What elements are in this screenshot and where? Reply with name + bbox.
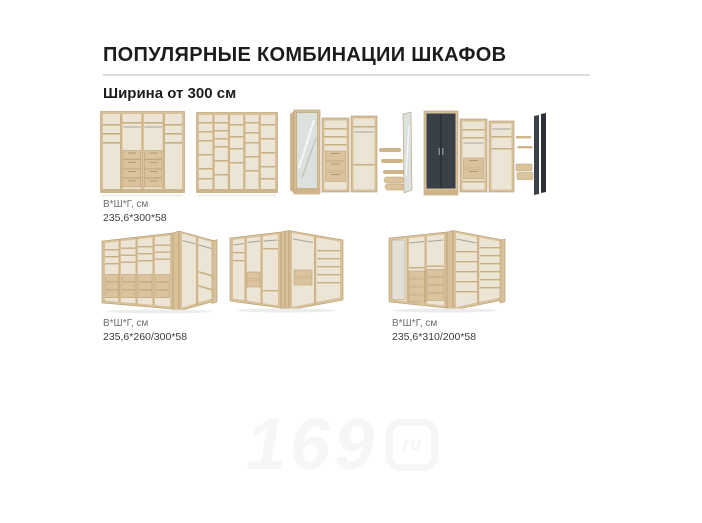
wardrobe-straight-open-shelving-icon (196, 112, 278, 198)
wardrobe-corner-shelves-right-icon (385, 227, 508, 314)
frosted-door (392, 240, 405, 300)
dims-label: В*Ш*Г, см (103, 199, 167, 211)
section-subtitle: Ширина от 300 см (103, 85, 236, 102)
dimensions-straight: В*Ш*Г, см 235,6*300*58 (103, 199, 167, 224)
title-divider (103, 74, 590, 76)
product-image-wardrobe-3[interactable] (288, 106, 414, 199)
dark-side-panel (534, 115, 539, 195)
page-title: ПОПУЛЯРНЫЕ КОМБИНАЦИИ ШКАФОВ (103, 44, 506, 67)
product-image-wardrobe-2[interactable] (196, 112, 278, 198)
product-image-corner-wardrobe-1[interactable] (99, 227, 223, 315)
dimensions-corner-right: В*Ш*Г, см 235,6*310/200*58 (392, 318, 476, 343)
wardrobe-combo-dark-doors-icon (422, 106, 546, 199)
product-image-wardrobe-4[interactable] (422, 106, 546, 199)
dims-label: В*Ш*Г, см (392, 318, 476, 330)
wardrobe-corner-v-shape-icon (227, 228, 346, 314)
watermark-169ru-logo: 169 ru (246, 402, 438, 488)
dims-label: В*Ш*Г, см (103, 318, 187, 330)
wall-shelf (516, 136, 531, 138)
dims-value: 235,6*300*58 (103, 212, 167, 224)
wardrobe-combo-mirror-door-icon (288, 106, 414, 199)
dims-value: 235,6*260/300*58 (103, 331, 187, 343)
dimensions-corner-left: В*Ш*Г, см 235,6*260/300*58 (103, 318, 187, 343)
mirror-door (297, 113, 318, 189)
round-wall-shelf (379, 148, 401, 152)
product-image-wardrobe-1[interactable] (100, 111, 185, 199)
watermark-digits: 169 (246, 409, 378, 481)
watermark-ru-badge: ru (386, 419, 438, 471)
wardrobe-straight-shelves-drawers-icon (100, 111, 185, 199)
dims-value: 235,6*310/200*58 (392, 331, 476, 343)
product-image-corner-wardrobe-3[interactable] (385, 227, 508, 314)
wardrobe-corner-drawers-left-icon (99, 227, 223, 315)
product-image-corner-wardrobe-2[interactable] (227, 228, 346, 314)
